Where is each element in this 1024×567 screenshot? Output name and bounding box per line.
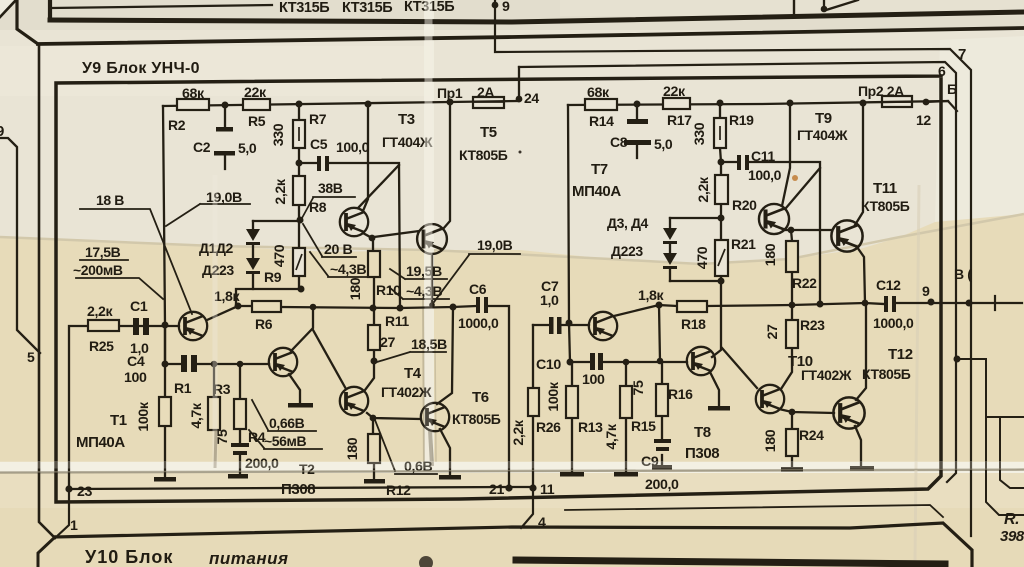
svg-text:38В: 38В [318,180,343,196]
svg-text:1,8к: 1,8к [638,288,665,304]
svg-text:0,66В: 0,66В [269,415,305,431]
svg-text:ГТ402Ж: ГТ402Ж [381,384,432,400]
svg-text:У10 Блок: У10 Блок [85,547,173,567]
svg-text:R21: R21 [731,236,756,252]
svg-text:Т9: Т9 [815,110,832,127]
svg-text:4: 4 [538,515,546,531]
svg-text:9: 9 [922,284,930,300]
svg-text:R26: R26 [536,419,561,435]
svg-text:R8: R8 [309,199,327,215]
svg-text:Т1: Т1 [110,412,127,429]
svg-text:4,7к: 4,7к [604,423,620,450]
svg-text:R9: R9 [264,269,282,285]
svg-text:1000,0: 1000,0 [458,315,499,331]
svg-text:22к: 22к [663,84,686,100]
svg-text:Т4: Т4 [404,365,422,382]
svg-text:2,2к: 2,2к [273,178,289,205]
svg-text:R16: R16 [668,386,693,402]
svg-text:68к: 68к [182,86,205,102]
svg-text:R17: R17 [667,112,692,128]
svg-text:Т8: Т8 [694,424,711,441]
svg-text:5: 5 [27,349,35,365]
svg-text:Т7: Т7 [591,161,608,178]
svg-text:R23: R23 [800,317,825,333]
svg-text:100: 100 [124,370,147,386]
svg-text:19,0В: 19,0В [206,190,242,206]
svg-text:R24: R24 [799,427,824,443]
svg-text:R12: R12 [386,482,411,498]
svg-text:R20: R20 [732,197,757,213]
svg-text:2,2к: 2,2к [696,176,712,203]
svg-text:5,0: 5,0 [654,136,673,152]
svg-text:180: 180 [348,277,364,300]
svg-text:питания: питания [209,549,289,567]
svg-text:Т12: Т12 [888,346,913,363]
svg-text:С12: С12 [876,277,901,293]
svg-text:180: 180 [763,429,779,452]
svg-text:КТ805Б: КТ805Б [861,198,910,214]
svg-text:100к: 100к [546,381,562,411]
svg-text:19,5В: 19,5В [406,264,442,280]
svg-text:R5: R5 [248,113,266,129]
svg-text:1: 1 [70,518,78,534]
svg-text:2А: 2А [477,84,494,100]
svg-text:Д223: Д223 [202,262,234,278]
svg-text:~200мВ: ~200мВ [73,262,123,278]
svg-text:2,2к: 2,2к [87,304,114,320]
svg-text:23: 23 [77,484,92,500]
svg-text:R22: R22 [792,275,817,291]
svg-text:180: 180 [345,437,361,460]
svg-text:2,2к: 2,2к [511,419,527,446]
svg-text:24: 24 [524,90,539,106]
svg-text:5,0: 5,0 [238,140,257,156]
svg-text:R13: R13 [578,419,603,435]
svg-text:R11: R11 [385,313,409,329]
svg-text:18 В: 18 В [96,192,124,208]
svg-text:Т5: Т5 [480,124,497,141]
svg-text:17,5В: 17,5В [85,244,121,260]
svg-text:С10: С10 [536,357,561,373]
svg-text:Т6: Т6 [472,389,489,406]
svg-text:У9 Блок УНЧ-0: У9 Блок УНЧ-0 [82,60,200,77]
svg-text:R18: R18 [681,316,706,332]
svg-text:R10: R10 [376,282,401,298]
svg-text:П308: П308 [685,445,719,462]
svg-text:398: 398 [1000,528,1024,545]
svg-text:100к: 100к [136,401,152,431]
svg-text:КТ315Б: КТ315Б [279,0,329,16]
svg-text:Пр2 2А: Пр2 2А [858,83,904,99]
svg-text:1,0: 1,0 [540,293,559,309]
svg-text:Б: Б [947,81,957,97]
svg-text:1,8к: 1,8к [214,289,241,305]
svg-text:7: 7 [958,46,966,63]
svg-text:П308: П308 [281,481,315,498]
svg-text:Пр1: Пр1 [437,85,463,101]
svg-text:6: 6 [938,63,946,79]
svg-text:МП40А: МП40А [572,183,621,200]
svg-text:470: 470 [695,246,711,269]
svg-text:19,0В: 19,0В [477,237,513,253]
svg-text:470: 470 [272,244,288,267]
svg-text:Т3: Т3 [398,111,415,128]
svg-text:R7: R7 [309,111,327,127]
svg-text:9: 9 [502,0,510,15]
svg-text:Т11: Т11 [873,180,897,197]
svg-text:R25: R25 [89,338,114,354]
svg-text:МП40А: МП40А [76,434,125,451]
svg-text:В (: В ( [954,266,972,282]
svg-text:С1: С1 [130,299,148,315]
svg-text:~56мВ: ~56мВ [264,433,307,449]
svg-text:С11: С11 [751,148,775,164]
svg-text:27: 27 [765,324,781,339]
svg-text:200,0: 200,0 [645,477,679,493]
svg-text:20 В: 20 В [324,242,353,258]
svg-text:R19: R19 [729,112,754,128]
svg-text:68к: 68к [587,85,610,101]
svg-text:R2: R2 [168,117,186,133]
svg-text:100,0: 100,0 [336,139,370,155]
svg-text:R15: R15 [631,418,656,434]
svg-text:R1: R1 [174,380,192,396]
svg-text:75: 75 [631,380,647,395]
svg-text:Д223: Д223 [611,243,643,259]
svg-text:~4,3В: ~4,3В [330,262,366,278]
svg-text:12: 12 [916,112,931,128]
svg-text:КТ805Б: КТ805Б [459,147,508,163]
svg-text:22к: 22к [244,85,267,101]
svg-text:Д3, Д4: Д3, Д4 [607,215,649,231]
svg-text:1000,0: 1000,0 [873,315,914,331]
svg-text:11: 11 [540,482,555,498]
svg-text:ГТ402Ж: ГТ402Ж [801,367,852,383]
svg-text:С4: С4 [127,354,145,370]
svg-text:27: 27 [380,335,395,351]
svg-text:С6: С6 [469,281,487,297]
svg-text:С2: С2 [193,139,211,155]
svg-text:330: 330 [271,123,287,146]
svg-text:С8: С8 [610,134,628,150]
svg-text:21: 21 [489,482,504,498]
svg-text:КТ805Б: КТ805Б [452,411,501,427]
svg-text:R6: R6 [255,316,273,332]
svg-text:330: 330 [692,122,708,145]
svg-text:100: 100 [582,372,605,388]
svg-text:С5: С5 [310,136,328,152]
svg-text:КТ315Б: КТ315Б [342,0,392,16]
svg-text:R.: R. [1004,511,1019,528]
svg-text:100,0: 100,0 [748,167,782,183]
svg-text:9: 9 [0,123,4,140]
svg-text:КТ805Б: КТ805Б [862,366,911,382]
svg-text:180: 180 [763,243,779,266]
svg-text:~4,3В: ~4,3В [406,284,442,300]
svg-text:ГТ404Ж: ГТ404Ж [797,127,848,143]
svg-text:4,7к: 4,7к [189,402,205,429]
svg-text:R14: R14 [589,113,614,129]
